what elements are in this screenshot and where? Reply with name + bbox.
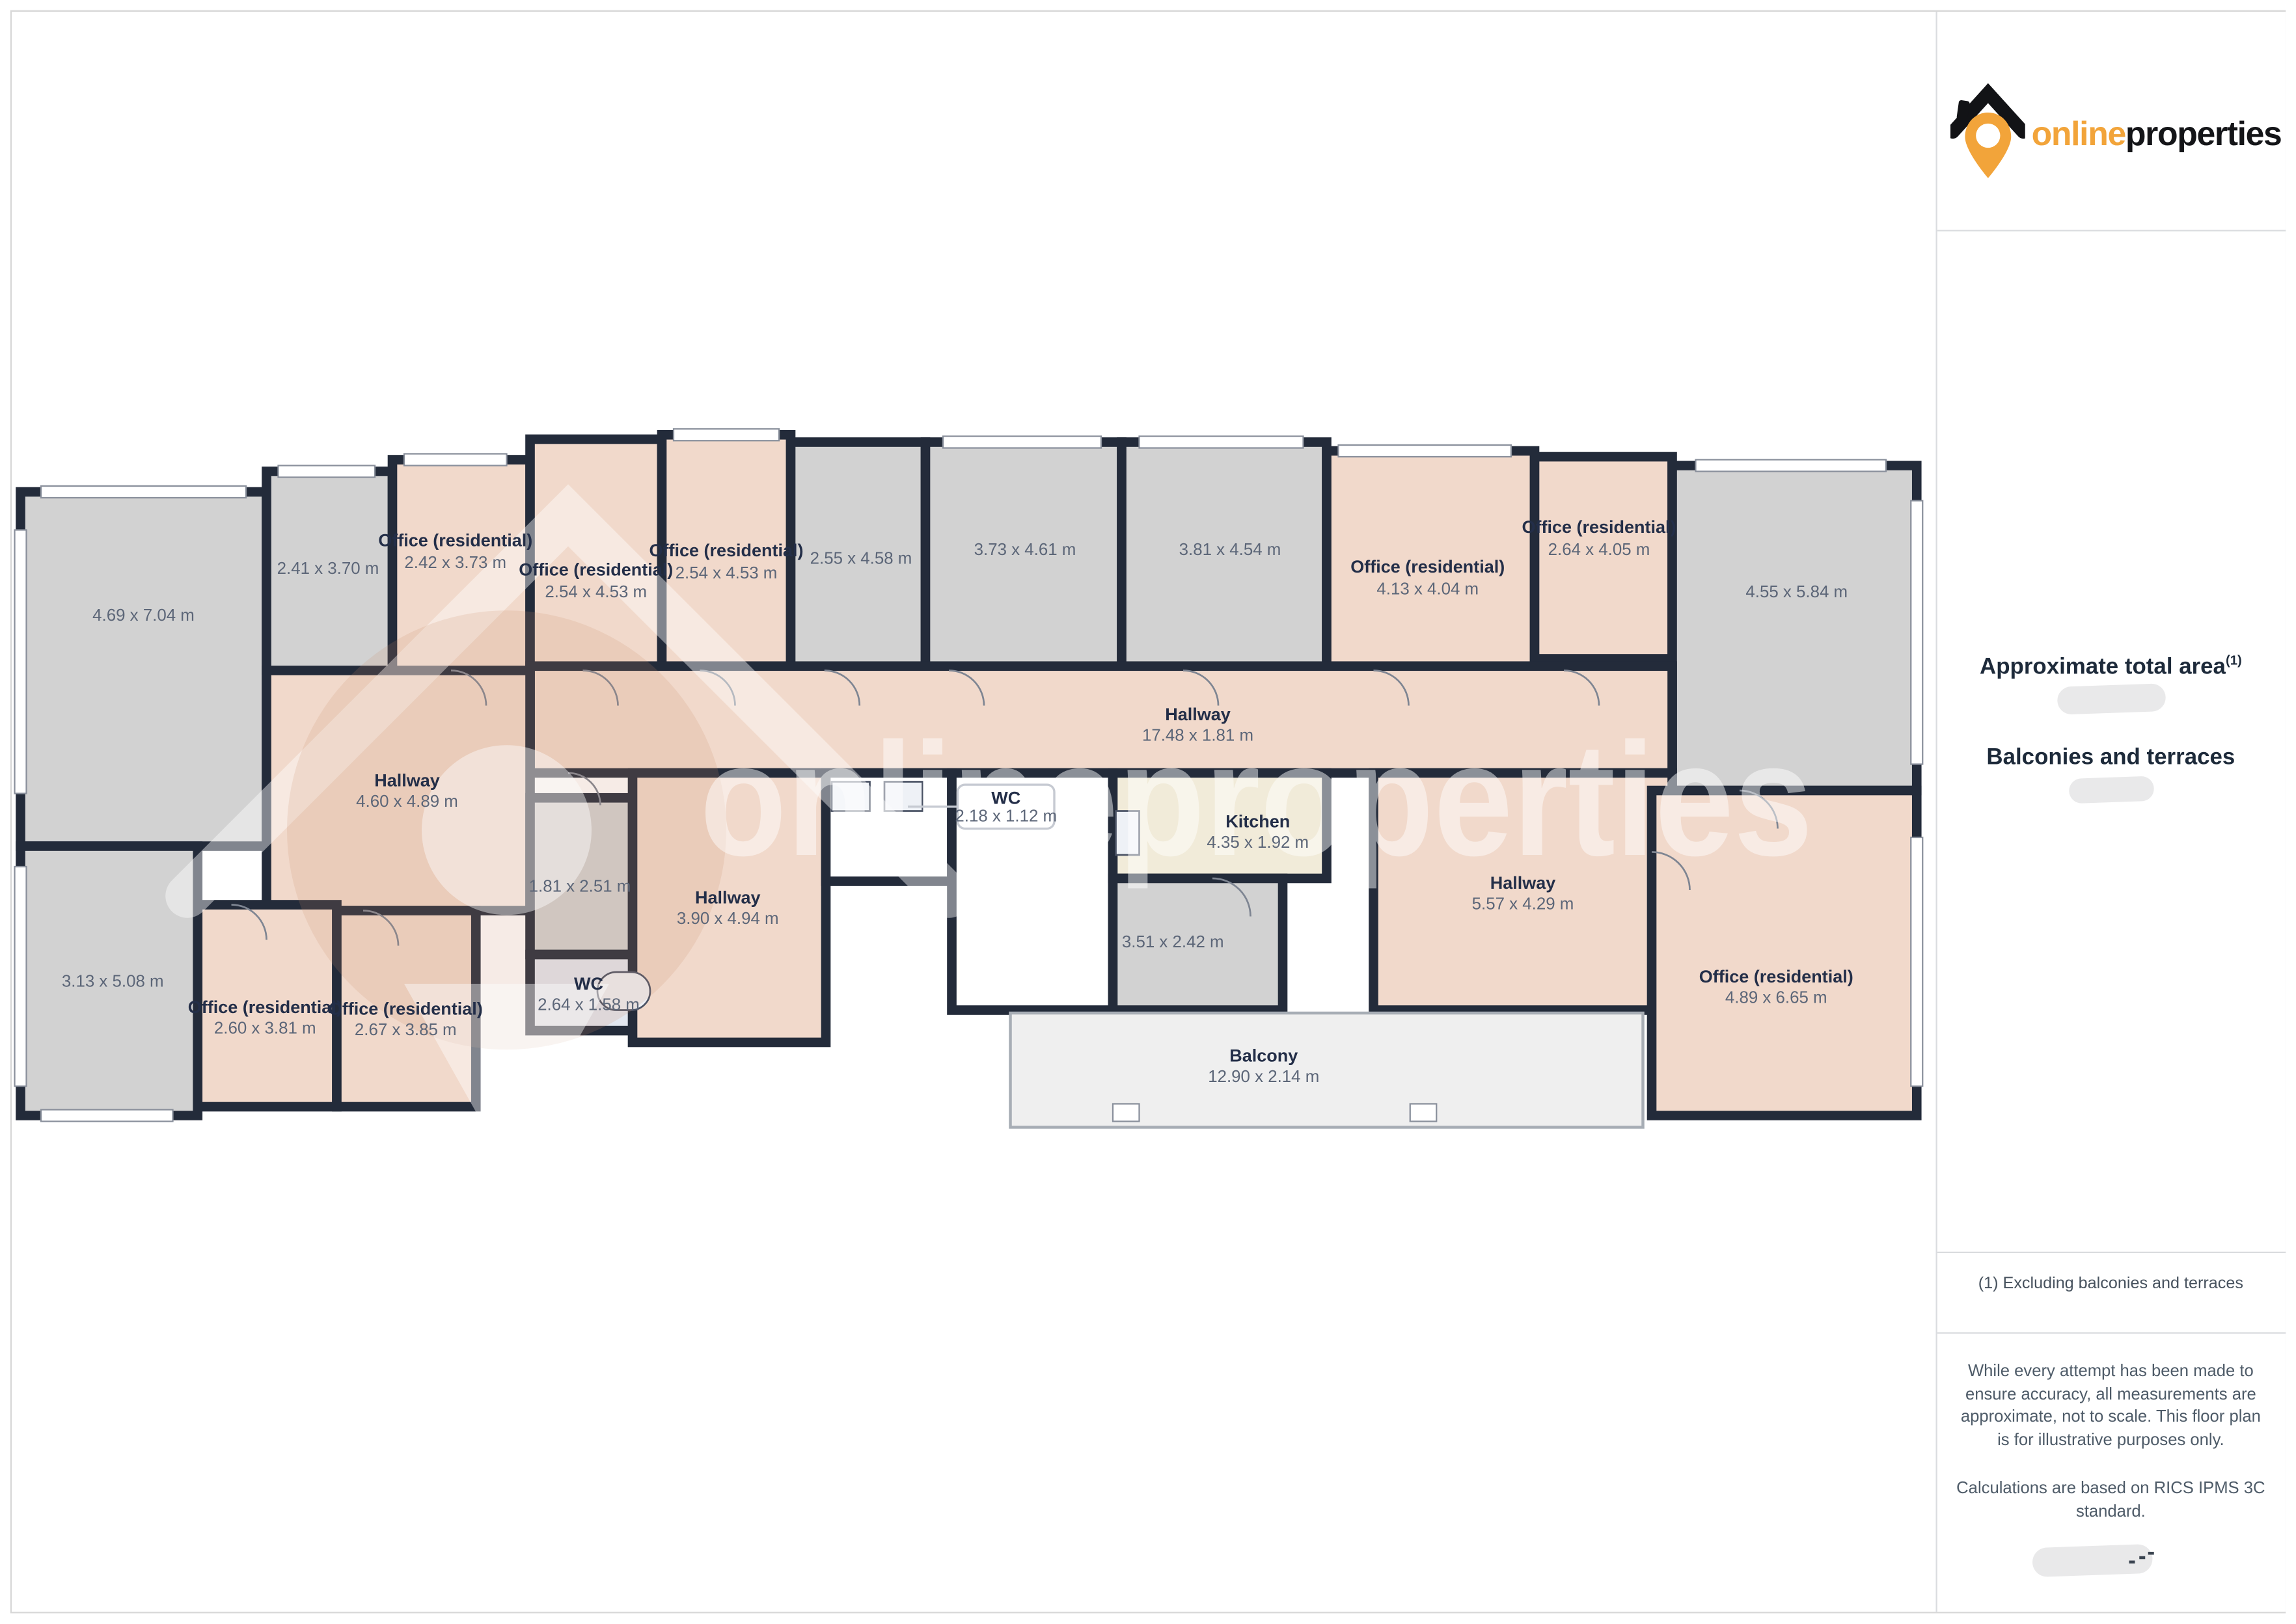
watermark-text: onlineproperties — [700, 710, 1813, 889]
room-dims: 3.90 x 4.94 m — [677, 910, 779, 928]
total-area-title: Approximate total area(1) — [1936, 653, 2286, 681]
room-label: Office (residential) — [1350, 557, 1505, 576]
balconies-value-redacted — [2069, 776, 2155, 804]
section-divider — [1937, 230, 2286, 231]
room-dims: 2.41 x 3.70 m — [277, 560, 379, 578]
room-dims: 2.54 x 4.53 m — [545, 583, 647, 601]
floorplan-drawing: onlineproperties WC 2.18 x 1.12 m 4.69 x… — [12, 427, 1933, 1148]
room-label: Hallway — [1165, 705, 1231, 724]
window — [674, 429, 779, 440]
disclaimer-paragraph-1: While every attempt has been made to ens… — [1956, 1362, 2265, 1453]
window — [1911, 501, 1922, 765]
section-divider — [1937, 1333, 2286, 1334]
window — [404, 454, 507, 466]
sidebar-divider — [1936, 12, 1937, 1612]
brand-name: onlineproperties — [2032, 113, 2282, 153]
window — [1911, 837, 1922, 1087]
room-dims: 3.73 x 4.61 m — [974, 541, 1076, 559]
window — [943, 437, 1101, 448]
room-label: Hallway — [1490, 873, 1556, 893]
area-footnote: (1) Excluding balconies and terraces — [1936, 1275, 2286, 1293]
room-label: Hallway — [695, 887, 761, 907]
balcony-post — [1113, 1104, 1140, 1122]
room-dims: 3.13 x 5.08 m — [62, 973, 164, 991]
room-label: WC — [574, 974, 603, 994]
sidebar: onlineproperties Approximate total area(… — [1936, 12, 2286, 1612]
total-area-value-redacted — [2057, 683, 2166, 715]
brand-name-online: online — [2032, 113, 2125, 152]
logo-pin-hole — [1976, 124, 2000, 148]
room-label: Office (residential) — [519, 560, 673, 579]
room-dims: 2.42 x 3.73 m — [404, 554, 506, 572]
room-label: Balcony — [1229, 1046, 1298, 1065]
disclaimer-paragraph-2: Calculations are based on RICS IPMS 3C s… — [1956, 1479, 2265, 1524]
room-dims: 2.18 x 1.12 m — [955, 807, 1057, 825]
brand-name-properties: properties — [2125, 113, 2282, 152]
room-dims: 2.67 x 3.85 m — [355, 1021, 457, 1039]
room-dims: 2.54 x 4.53 m — [676, 564, 778, 582]
room-label: Office (residential) — [188, 997, 342, 1017]
room-dims: 4.55 x 5.84 m — [1745, 583, 1848, 601]
room-balcony — [1011, 1013, 1643, 1128]
room-dims: 3.81 x 4.54 m — [1179, 541, 1281, 559]
window — [1339, 445, 1512, 457]
room-4.69x7.04 — [21, 492, 267, 846]
room-label: Office (residential) — [649, 541, 803, 560]
window — [1696, 460, 1887, 472]
room-label: Office (residential) — [1699, 967, 1853, 986]
room-label: Office (residential) — [329, 999, 483, 1018]
window — [41, 1110, 173, 1122]
footnote-marker: (1) — [2226, 653, 2242, 668]
room-dims: 17.48 x 1.81 m — [1142, 727, 1253, 745]
balconies-title: Balconies and terraces — [1936, 745, 2286, 772]
room-dims: 2.60 x 3.81 m — [214, 1020, 316, 1038]
window — [41, 486, 246, 498]
window — [1140, 437, 1304, 448]
brand-logo-icon — [1950, 74, 2026, 194]
brand-logo: onlineproperties — [1950, 66, 2282, 200]
room-dims: 2.64 x 1.58 m — [538, 996, 640, 1014]
floorplan-page: onlineproperties WC 2.18 x 1.12 m 4.69 x… — [0, 0, 2296, 1624]
room-dims: 4.13 x 4.04 m — [1376, 580, 1479, 599]
room-dims: 2.55 x 4.58 m — [810, 549, 912, 567]
window — [279, 466, 376, 478]
room-dims: 3.51 x 2.42 m — [1122, 933, 1224, 951]
room-dims: 4.60 x 4.89 m — [356, 792, 458, 811]
window — [15, 530, 27, 794]
total-area-title-text: Approximate total area — [1980, 655, 2226, 679]
room-label: Office (residential) — [1522, 517, 1676, 537]
room-dims: 2.64 x 4.05 m — [1548, 541, 1650, 559]
room-label: Hallway — [374, 770, 440, 790]
signature-marks — [2129, 1561, 2135, 1564]
room-dims: 5.57 x 4.29 m — [1472, 895, 1574, 913]
room-label: Office (residential) — [378, 530, 532, 550]
section-divider — [1937, 1252, 2286, 1253]
balcony-post — [1410, 1104, 1437, 1122]
room-dims: 4.35 x 1.92 m — [1207, 833, 1309, 852]
room-label: Kitchen — [1225, 811, 1290, 831]
room-dims: 4.89 x 6.65 m — [1725, 988, 1827, 1007]
room-dims: 4.69 x 7.04 m — [92, 606, 195, 625]
window — [15, 867, 27, 1087]
room-dims: 1.81 x 2.51 m — [529, 877, 631, 895]
room-label: WC — [991, 788, 1020, 807]
room-dims: 12.90 x 2.14 m — [1208, 1068, 1319, 1086]
